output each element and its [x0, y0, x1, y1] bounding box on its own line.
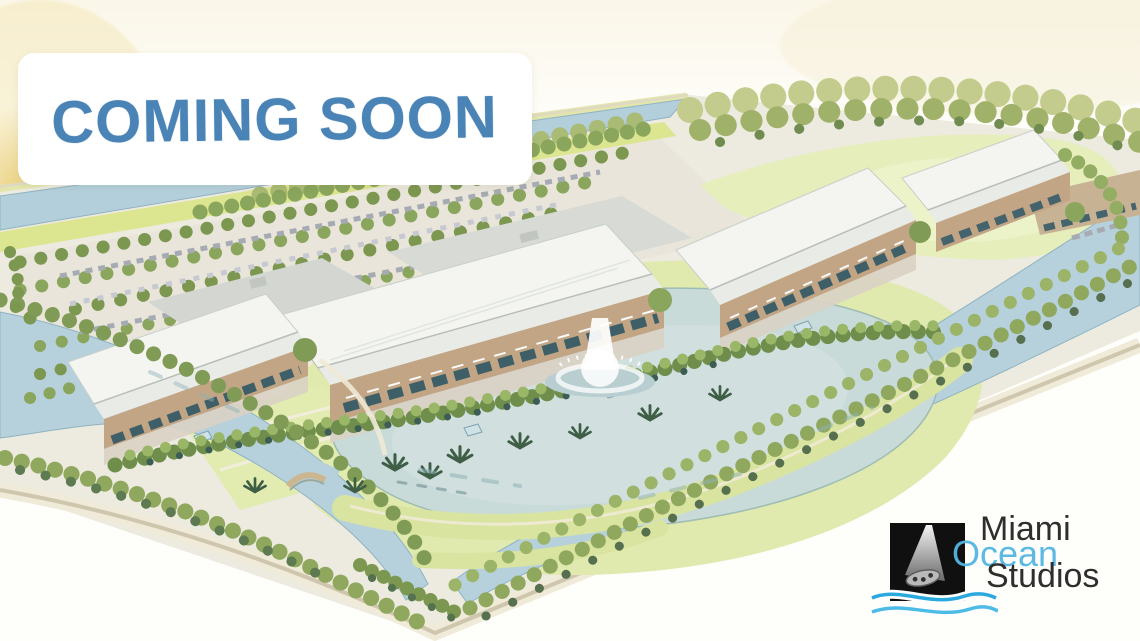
wave-icon [870, 586, 998, 626]
coming-soon-banner: COMING SOON [18, 53, 532, 185]
coming-soon-text: COMING SOON [51, 82, 498, 156]
logo-word-miami: Miami [980, 512, 1071, 546]
miami-ocean-studios-logo: Ocean Miami Studios [868, 510, 1140, 641]
logo-word-studios: Studios [986, 559, 1099, 593]
promo-image: COMING SOON [0, 0, 1140, 641]
